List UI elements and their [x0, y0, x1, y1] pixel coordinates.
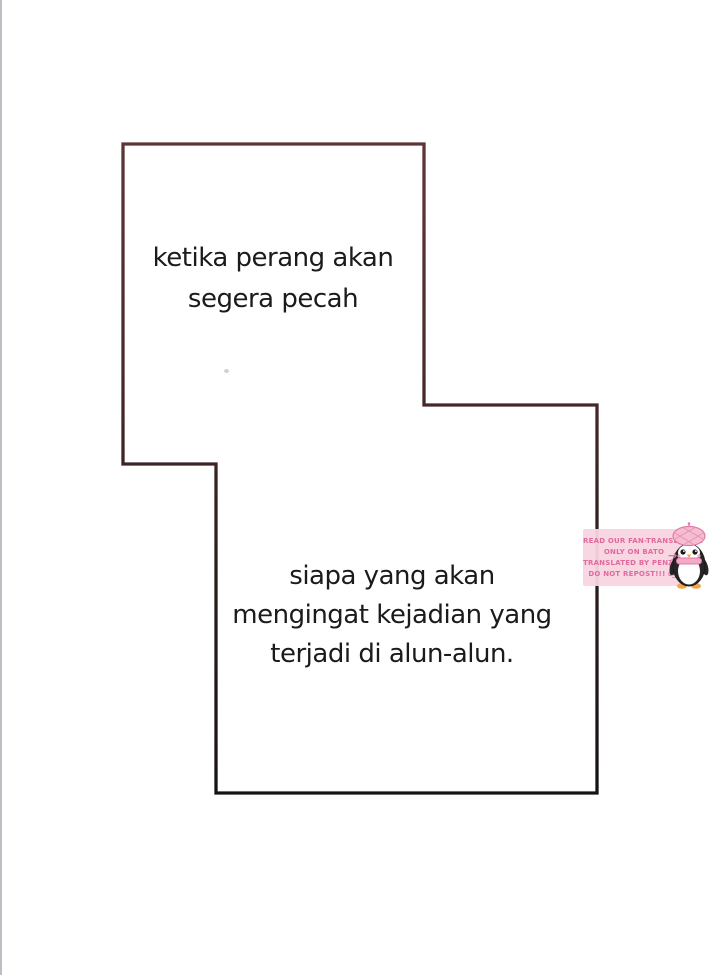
penguin-eye: [680, 549, 685, 554]
penguin-eye: [692, 549, 697, 554]
comic-page: ketika perang akan segera pecah siapa ya…: [0, 0, 720, 975]
caption-line: mengingat kejadian yang: [212, 596, 572, 635]
ink-speck: [224, 369, 229, 373]
beret-stem-tip: [688, 522, 691, 525]
caption-line: terjadi di alun-alun.: [212, 635, 572, 674]
caption-top: ketika perang akan segera pecah: [123, 238, 423, 320]
eye-glint: [683, 550, 685, 552]
caption-line: siapa yang akan: [212, 557, 572, 596]
scarf-band: [677, 558, 702, 564]
penguin-blush: [698, 555, 701, 558]
penguin-beret: [673, 527, 705, 546]
caption-bottom: siapa yang akan mengingat kejadian yang …: [212, 557, 572, 674]
penguin-blush: [678, 555, 681, 558]
arrow-to-mascot-icon: →: [668, 549, 677, 562]
caption-line: ketika perang akan: [123, 238, 423, 279]
eye-glint: [695, 550, 697, 552]
panel-outline: [0, 0, 720, 975]
caption-line: segera pecah: [123, 279, 423, 320]
